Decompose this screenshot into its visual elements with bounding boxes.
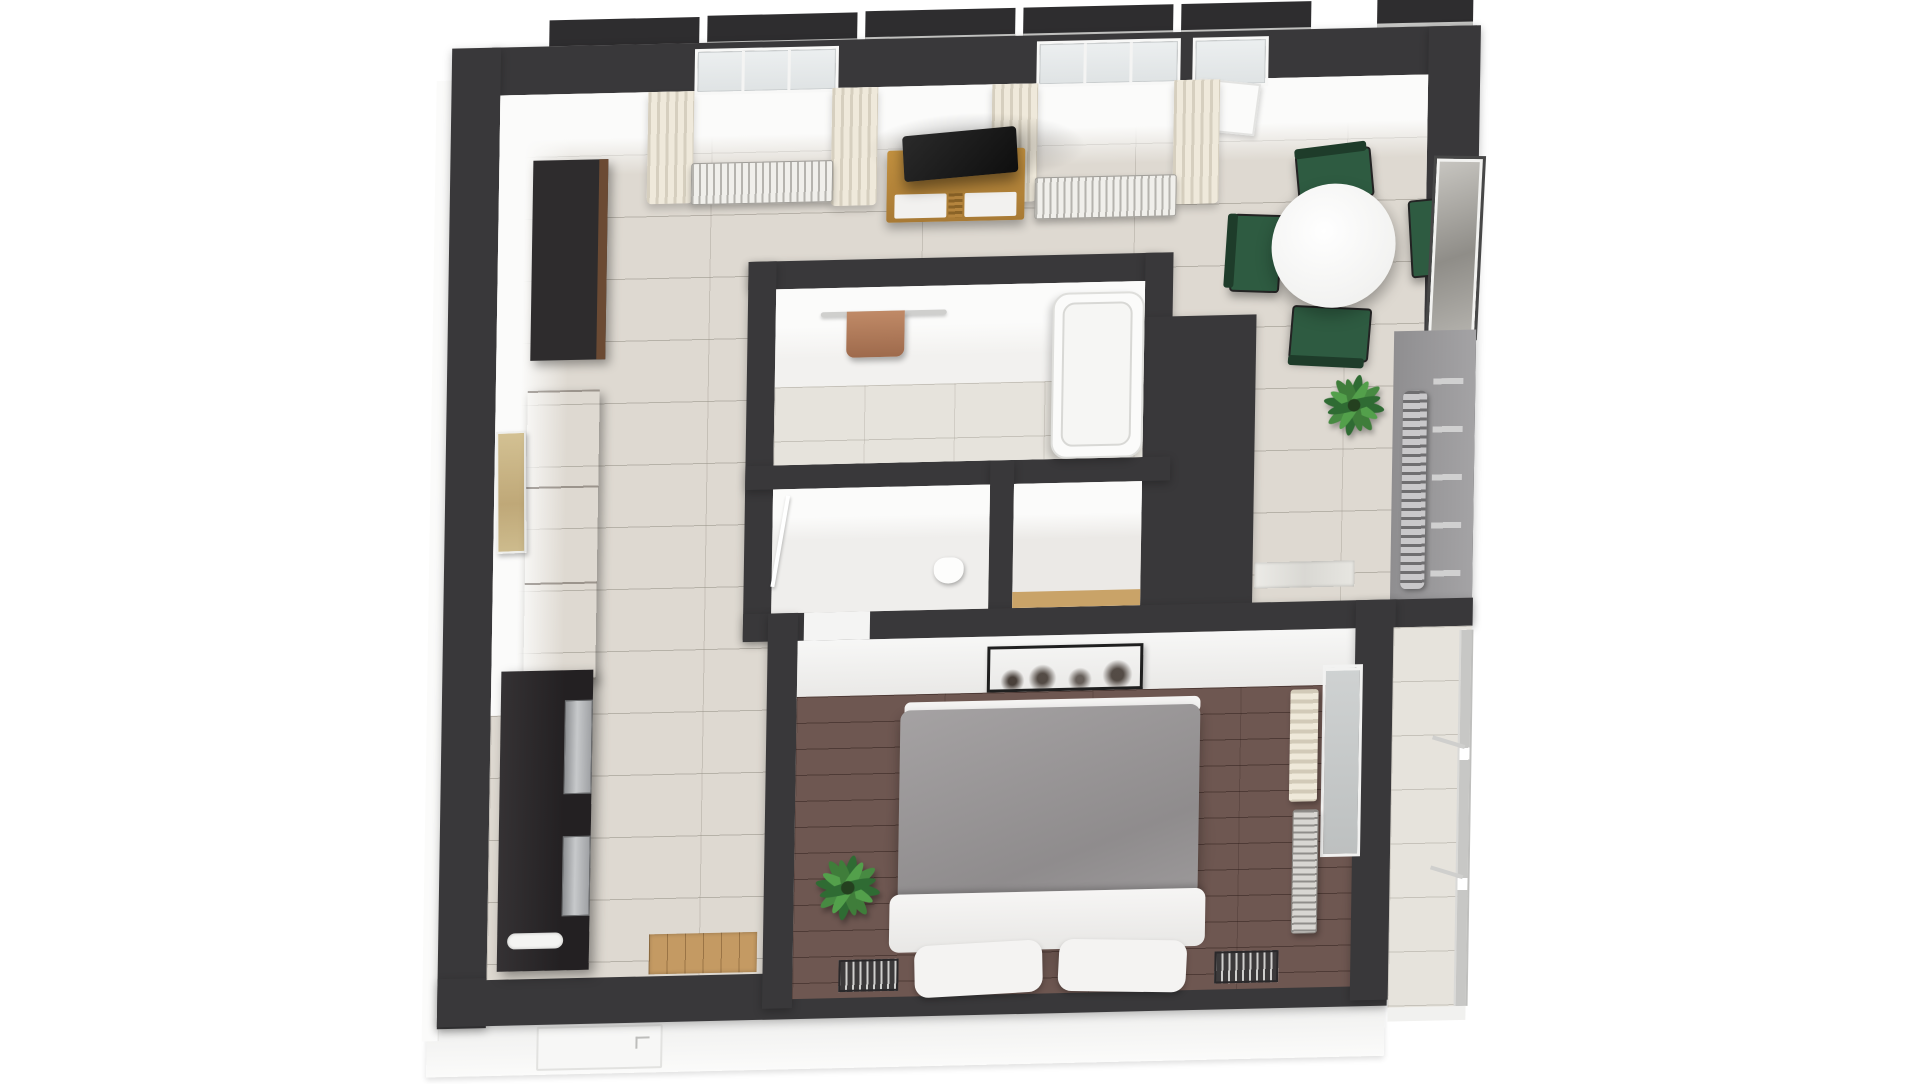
- appliance-front-1: [563, 700, 592, 795]
- window-mullion: [787, 50, 791, 90]
- balcony-edge-bottom: [1387, 1006, 1465, 1022]
- appliance-front-2: [562, 836, 591, 917]
- entry-doormat-wood: [649, 932, 758, 974]
- plant-dining: [1308, 359, 1399, 451]
- toilet: [934, 557, 964, 584]
- bedroom-door-opening: [804, 611, 870, 641]
- tv-stand-drawer-right: [964, 192, 1016, 217]
- wc-wall-face: [772, 485, 990, 542]
- plant-bedroom: [799, 839, 896, 937]
- bedroom-panoramic-picture: [987, 643, 1144, 693]
- dining-wall-art: [1425, 156, 1486, 341]
- towel-rack-frame: [1430, 378, 1463, 593]
- radiator-window2: [1034, 174, 1177, 219]
- exterior-window-head: [1377, 0, 1473, 28]
- tv-stand-drawer-left: [894, 193, 946, 218]
- window-1: [694, 46, 839, 95]
- curtain-window2-right: [1172, 79, 1220, 204]
- dining-chair-south: [1288, 305, 1372, 363]
- window-2: [1036, 38, 1181, 87]
- marble-doormat: [1254, 560, 1354, 588]
- closet-wood-threshold: [1012, 589, 1140, 608]
- nightstand-left: [838, 959, 898, 992]
- bedroom-east-window: [1320, 664, 1363, 857]
- tv-stand-slats: [948, 193, 962, 217]
- curtain-window1-left: [647, 91, 695, 204]
- pillow-right: [1057, 939, 1187, 993]
- pillow-left: [914, 939, 1043, 998]
- bedroom-east-curtain: [1289, 689, 1319, 802]
- wc-floor: [771, 485, 990, 614]
- towel-radiator-east: [1400, 391, 1427, 590]
- nightstand-right: [1214, 950, 1278, 983]
- floor-plan: [421, 0, 1497, 1084]
- closet-wall-face: [1013, 481, 1142, 540]
- radiator-window1: [691, 160, 834, 205]
- tall-cabinet: [530, 159, 608, 361]
- bedroom-east-radiator: [1291, 809, 1319, 934]
- west-wall-art: [496, 431, 526, 554]
- towel: [846, 310, 905, 357]
- bathtub: [1050, 291, 1145, 459]
- bathtub-inner: [1061, 301, 1133, 447]
- window-mullion: [741, 51, 745, 91]
- bed-duvet: [898, 704, 1201, 903]
- kitchen-sink: [507, 932, 563, 949]
- entry-door-handle: [635, 1036, 649, 1048]
- window-mullion: [1083, 43, 1087, 83]
- wardrobe-brown: [523, 389, 600, 681]
- closet-floor: [1012, 481, 1142, 608]
- window-mullion: [1129, 42, 1133, 82]
